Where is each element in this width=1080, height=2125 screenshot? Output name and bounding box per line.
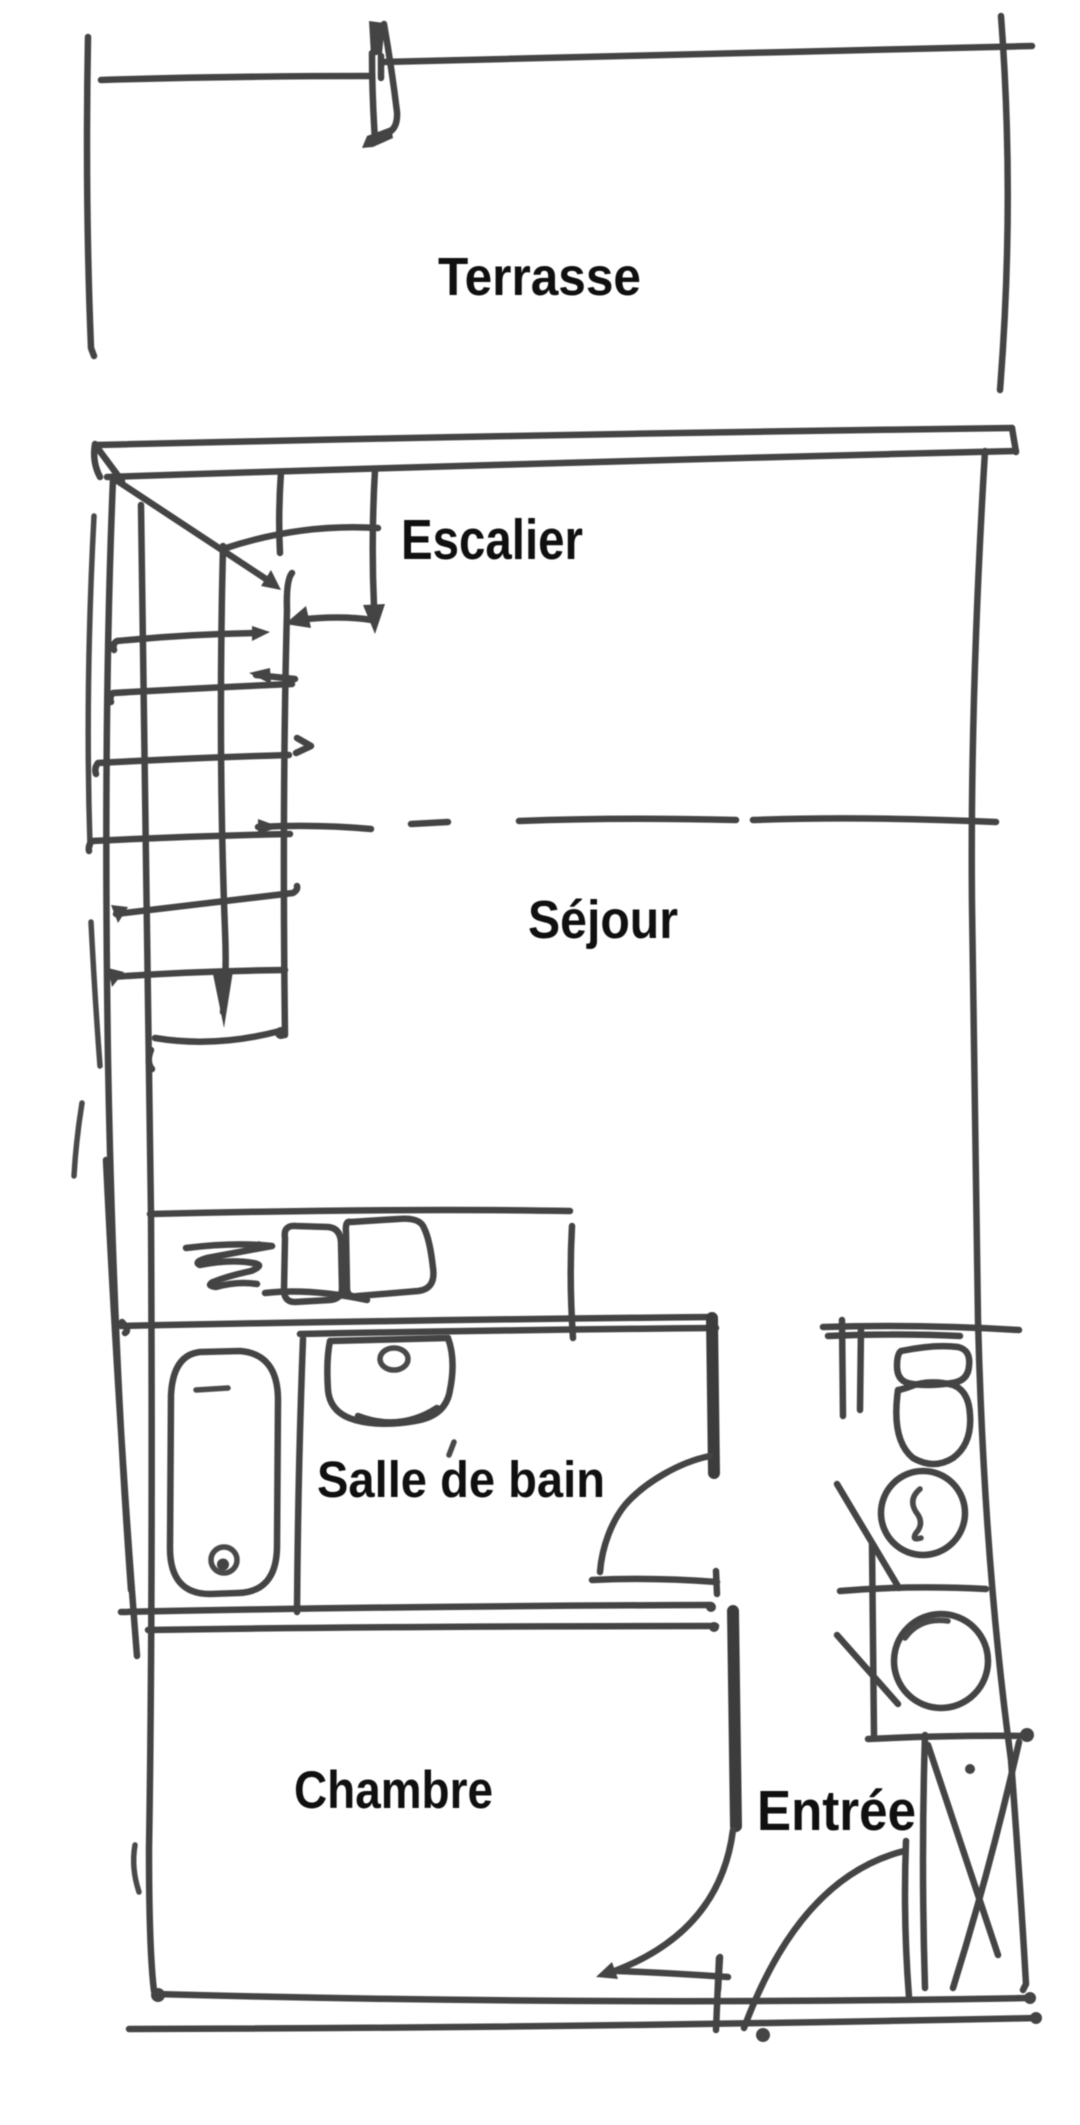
svg-text:Chambre: Chambre (294, 1761, 493, 1820)
svg-text:Séjour: Séjour (528, 890, 678, 950)
svg-text:Terrasse: Terrasse (438, 247, 641, 307)
svg-text:Salle de bain: Salle de bain (317, 1451, 605, 1508)
svg-text:Entrée: Entrée (757, 1779, 916, 1843)
svg-text:Escalier: Escalier (401, 508, 583, 572)
